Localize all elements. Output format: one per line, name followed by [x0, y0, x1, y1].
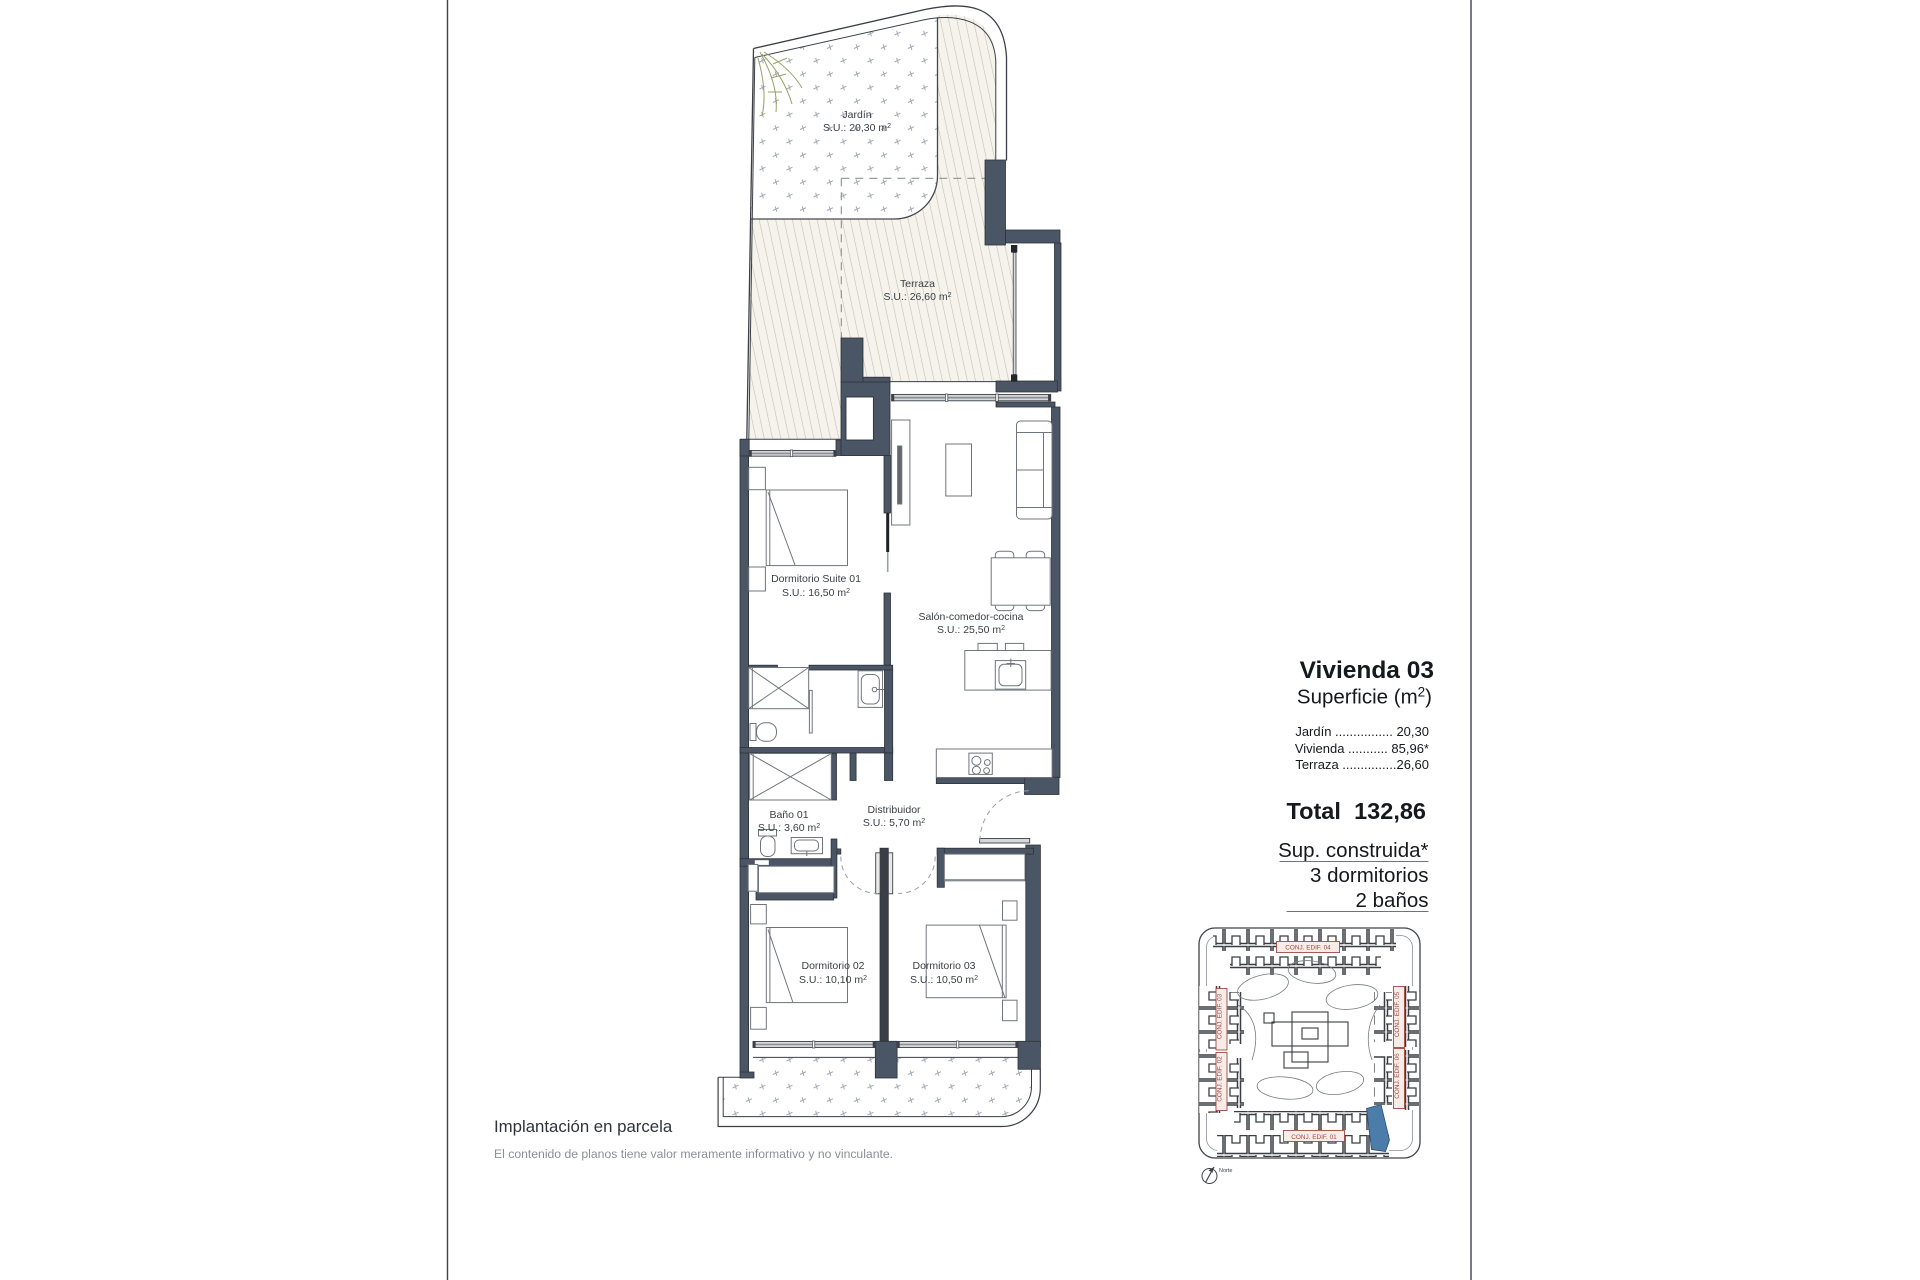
- svg-text:CONJ. EDIF. 02: CONJ. EDIF. 02: [1217, 1056, 1224, 1102]
- svg-text:Norte: Norte: [1219, 1168, 1232, 1174]
- svg-text:Jardín ................ 20,30: Jardín ................ 20,30: [1295, 724, 1429, 739]
- svg-text:CONJ. EDIF. 06: CONJ. EDIF. 06: [1394, 1053, 1401, 1099]
- svg-text:CONJ. EDIF. 05: CONJ. EDIF. 05: [1394, 991, 1401, 1037]
- svg-text:Baño 01: Baño 01: [769, 809, 808, 821]
- svg-text:CONJ. EDIF. 03: CONJ. EDIF. 03: [1217, 993, 1224, 1039]
- svg-text:Salón-comedor-cocina: Salón-comedor-cocina: [918, 611, 1023, 623]
- svg-text:3 dormitorios: 3 dormitorios: [1310, 864, 1429, 887]
- svg-text:El contenido de planos tiene v: El contenido de planos tiene valor meram…: [494, 1147, 893, 1161]
- svg-text:S.U.: 26,60 m2: S.U.: 26,60 m2: [883, 291, 951, 303]
- svg-text:S.U.: 10,50 m2: S.U.: 10,50 m2: [910, 974, 978, 986]
- svg-text:Dormitorio 02: Dormitorio 02: [801, 960, 864, 972]
- svg-text:Total: Total: [1287, 798, 1341, 824]
- svg-text:CONJ. EDIF. 01: CONJ. EDIF. 01: [1291, 1134, 1337, 1141]
- svg-text:Implantación en parcela: Implantación en parcela: [494, 1117, 673, 1136]
- svg-text:Dormitorio 03: Dormitorio 03: [912, 960, 975, 972]
- svg-text:CONJ. EDIF. 04: CONJ. EDIF. 04: [1285, 945, 1331, 952]
- svg-text:Jardín: Jardín: [842, 109, 871, 121]
- svg-text:S.U.: 25,50 m2: S.U.: 25,50 m2: [937, 624, 1005, 636]
- svg-text:S.U.: 5,70 m2: S.U.: 5,70 m2: [863, 817, 925, 829]
- svg-text:S.U.: 20,30 m2: S.U.: 20,30 m2: [823, 122, 891, 134]
- svg-text:Dormitorio Suite 01: Dormitorio Suite 01: [771, 573, 861, 585]
- svg-text:Terraza: Terraza: [900, 278, 935, 290]
- svg-text:Terraza ...............26,60: Terraza ...............26,60: [1295, 757, 1429, 772]
- svg-text:S.U.: 3,60 m2: S.U.: 3,60 m2: [758, 822, 820, 834]
- svg-text:Sup. construida*: Sup. construida*: [1278, 839, 1428, 862]
- svg-text:Distribuidor: Distribuidor: [867, 804, 921, 816]
- svg-text:S.U.: 16,50 m2: S.U.: 16,50 m2: [782, 587, 850, 599]
- svg-text:Vivienda ........... 85,96*: Vivienda ........... 85,96*: [1295, 741, 1429, 756]
- svg-text:132,86: 132,86: [1354, 798, 1426, 824]
- svg-text:Vivienda 03: Vivienda 03: [1300, 657, 1434, 684]
- svg-text:2 baños: 2 baños: [1356, 889, 1429, 912]
- svg-text:S.U.: 10,10 m2: S.U.: 10,10 m2: [799, 974, 867, 986]
- svg-text:Superficie (m2): Superficie (m2): [1297, 685, 1432, 709]
